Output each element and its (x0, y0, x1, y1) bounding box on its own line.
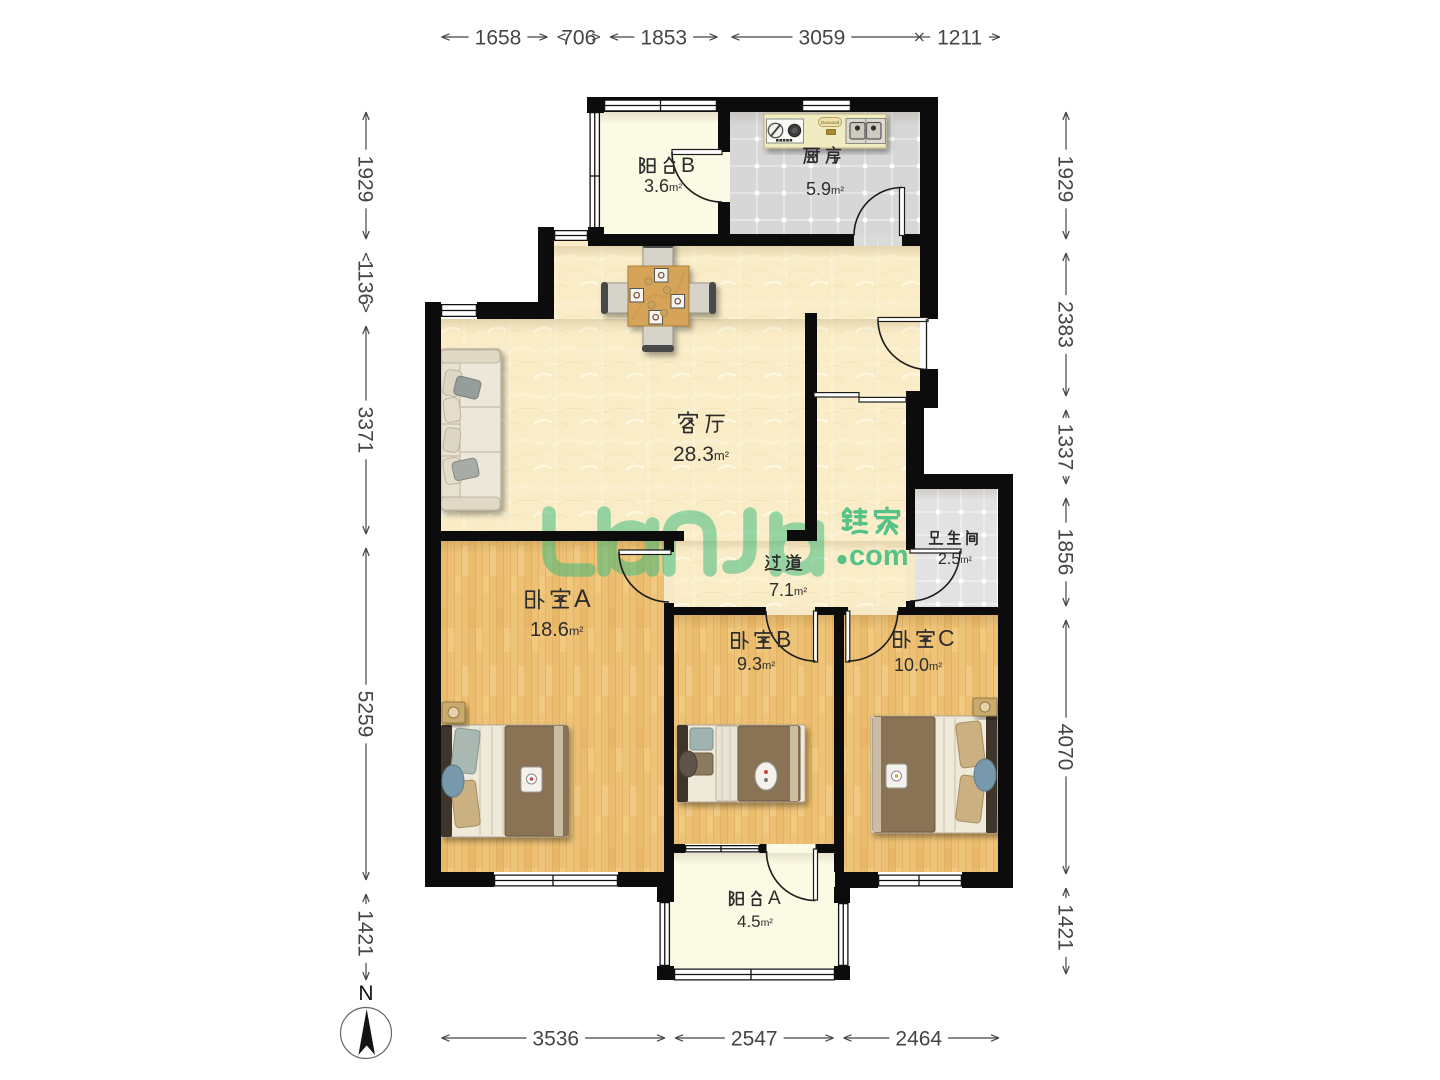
svg-text:1853: 1853 (640, 26, 687, 49)
svg-text:C: C (938, 625, 955, 651)
svg-text:N: N (358, 982, 373, 1005)
svg-text:2547: 2547 (731, 1027, 778, 1050)
svg-text:5259: 5259 (354, 691, 377, 738)
svg-text:3059: 3059 (799, 26, 846, 49)
svg-text:1136: 1136 (354, 260, 377, 305)
svg-text:1337: 1337 (1054, 424, 1077, 471)
svg-text:A: A (768, 888, 781, 909)
svg-text:A: A (574, 585, 591, 613)
svg-text:1421: 1421 (1054, 904, 1077, 951)
svg-text:706: 706 (561, 26, 596, 49)
svg-text:2383: 2383 (1054, 301, 1077, 348)
svg-text:com: com (849, 540, 909, 572)
svg-text:B: B (681, 154, 695, 177)
svg-text:1211: 1211 (937, 26, 982, 49)
svg-text:1658: 1658 (475, 26, 522, 49)
svg-text:4070: 4070 (1054, 724, 1077, 771)
svg-text:2464: 2464 (895, 1027, 942, 1050)
svg-text:B: B (776, 626, 791, 652)
svg-text:Doooood: Doooood (821, 120, 840, 125)
svg-text:3536: 3536 (532, 1027, 579, 1050)
svg-text:1421: 1421 (354, 910, 377, 957)
svg-text:3371: 3371 (354, 407, 377, 454)
svg-text:1856: 1856 (1054, 529, 1077, 576)
svg-text:1929: 1929 (1054, 156, 1077, 203)
svg-text:1929: 1929 (354, 156, 377, 203)
